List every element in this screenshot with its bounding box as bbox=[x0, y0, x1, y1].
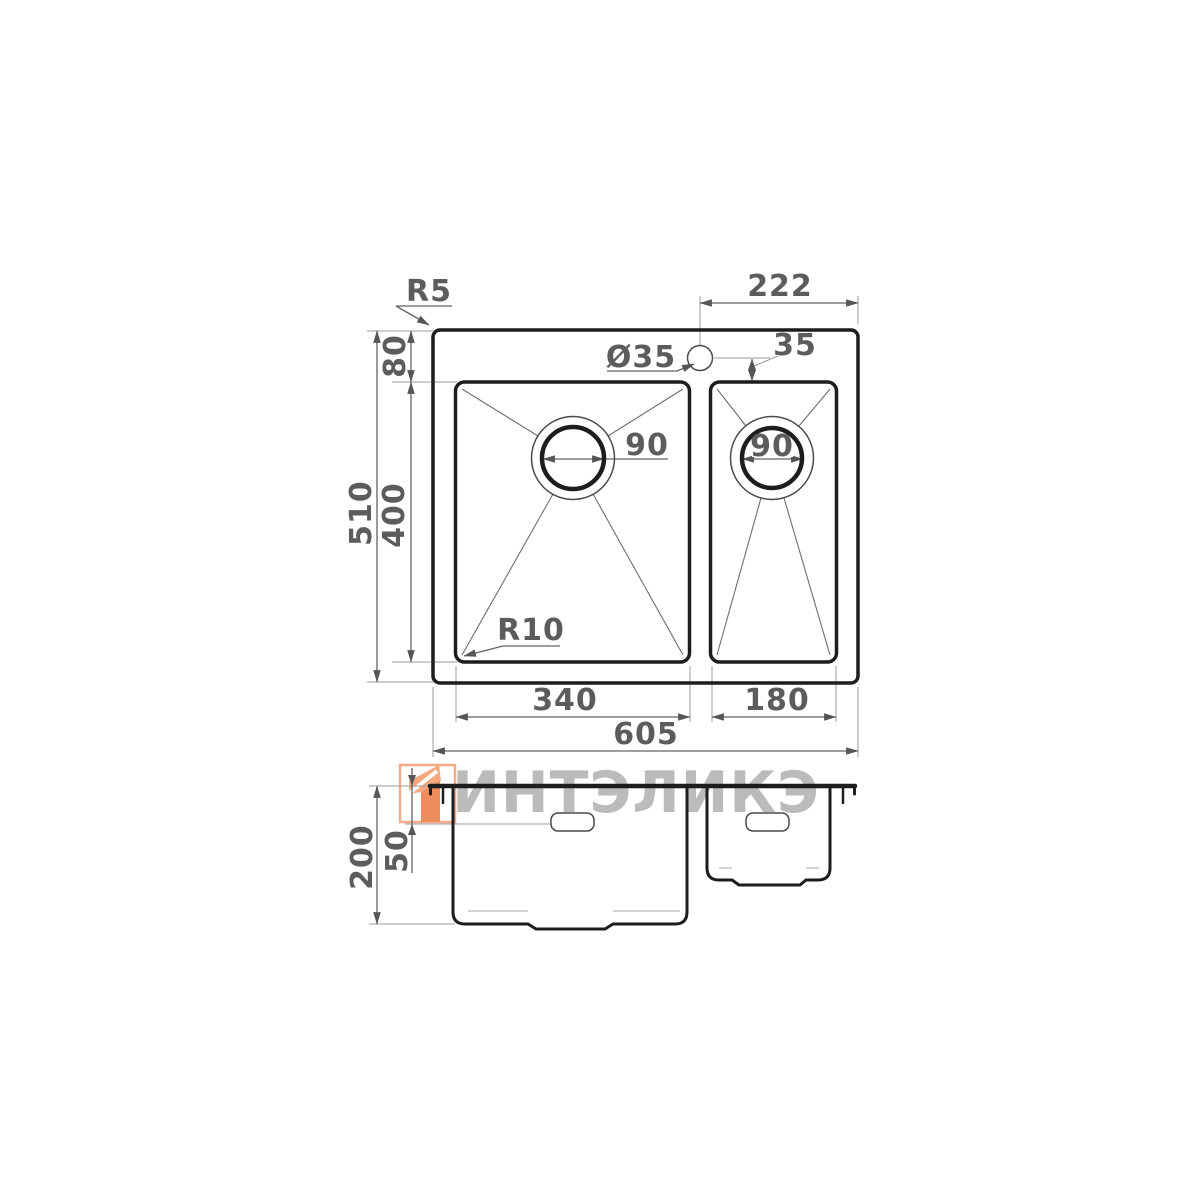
dim-corner-radius: R5 bbox=[406, 274, 452, 309]
dim-main-drain-diameter: 90 bbox=[625, 428, 669, 463]
main-drain bbox=[542, 427, 604, 489]
faucet-hole bbox=[688, 346, 713, 371]
dim-overall-depth: 510 bbox=[344, 480, 379, 546]
dim-small-bowl-width: 180 bbox=[744, 683, 810, 718]
dim-faucet-hole-diameter: Ø35 bbox=[606, 340, 676, 375]
dim-faucet-to-right-edge: 222 bbox=[747, 269, 813, 304]
technical-drawing-page: ИНТЭЛИКЭ bbox=[0, 0, 1200, 1200]
dim-edge-to-bowl-top: 80 bbox=[378, 334, 413, 378]
dim-faucet-to-small-bowl: 35 bbox=[773, 328, 817, 363]
dim-main-bowl-width: 340 bbox=[532, 683, 598, 718]
dim-bowl-corner-radius: R10 bbox=[497, 613, 565, 648]
dim-overflow-offset: 50 bbox=[380, 829, 415, 873]
dim-overall-width: 605 bbox=[613, 717, 679, 752]
dim-small-drain-diameter: 90 bbox=[750, 429, 794, 464]
intalika-logo-icon bbox=[400, 765, 455, 822]
small-bowl bbox=[711, 382, 837, 662]
watermark: ИНТЭЛИКЭ bbox=[400, 760, 820, 826]
main-bowl bbox=[456, 382, 690, 662]
top-view: R5 222 80 Ø35 35 90 90 510 400 R10 340 1… bbox=[344, 269, 858, 757]
watermark-text: ИНТЭЛИКЭ bbox=[452, 760, 820, 826]
dim-bowl-depth: 400 bbox=[377, 482, 412, 548]
sink-dimension-drawing: ИНТЭЛИКЭ bbox=[0, 0, 1200, 1200]
dim-bowl-height: 200 bbox=[345, 824, 380, 890]
